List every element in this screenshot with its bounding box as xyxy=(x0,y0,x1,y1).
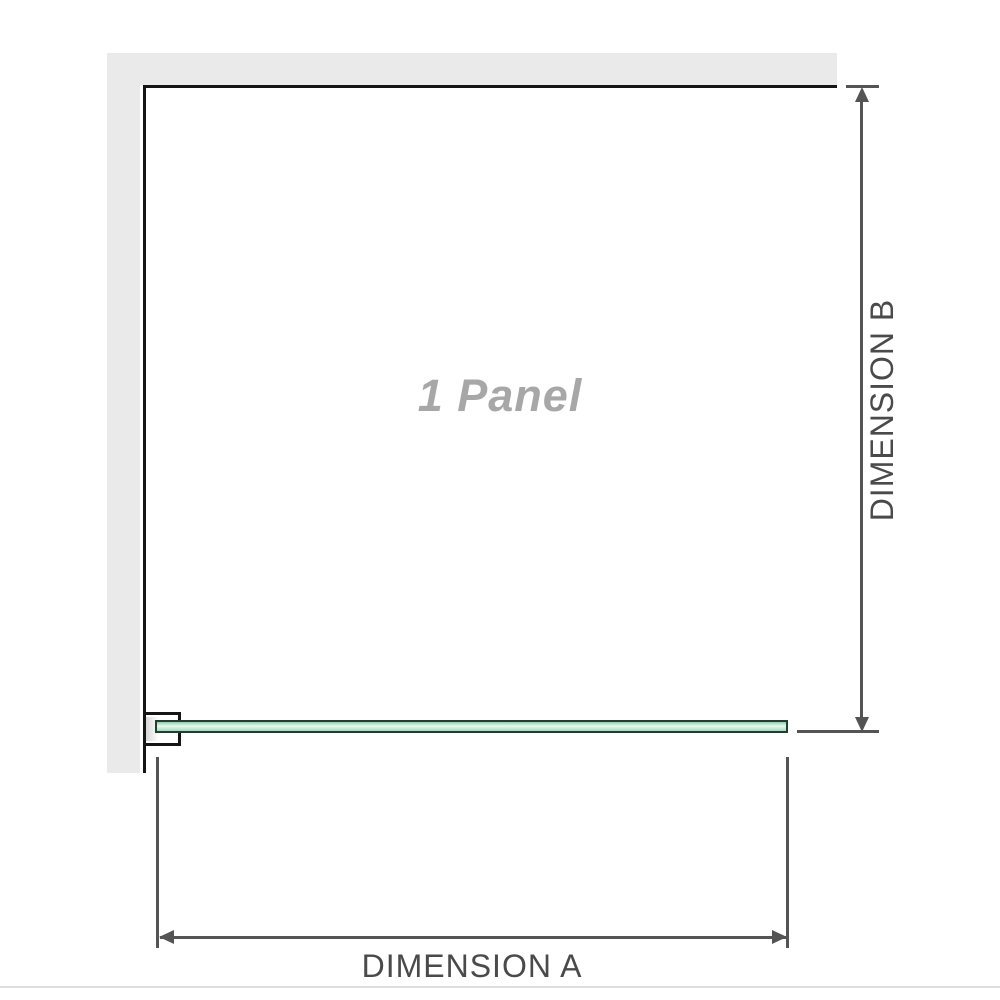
dimension-a-label: DIMENSION A xyxy=(272,948,672,984)
arrow-up-icon xyxy=(855,87,869,102)
shower-panel-diagram: 1 Panel DIMENSION B DIMENSION A xyxy=(0,0,1000,1000)
enclosure-top-line xyxy=(143,85,837,88)
glass-panel-bar xyxy=(155,720,788,733)
panel-count-label: 1 Panel xyxy=(350,370,650,422)
dimension-a-line xyxy=(160,936,787,939)
bottom-separator-line xyxy=(0,986,1000,988)
arrow-down-icon xyxy=(855,717,869,732)
dimension-a-left-tick xyxy=(156,757,159,948)
dimension-b-label: DIMENSION B xyxy=(864,210,900,610)
dimension-a-right-tick xyxy=(786,757,789,948)
enclosure-left-line xyxy=(143,85,146,773)
wall-top-bar xyxy=(107,53,837,85)
wall-left-bar xyxy=(107,53,140,773)
arrow-left-icon xyxy=(159,930,174,944)
dimension-b-line xyxy=(860,96,863,720)
arrow-right-icon xyxy=(772,930,787,944)
